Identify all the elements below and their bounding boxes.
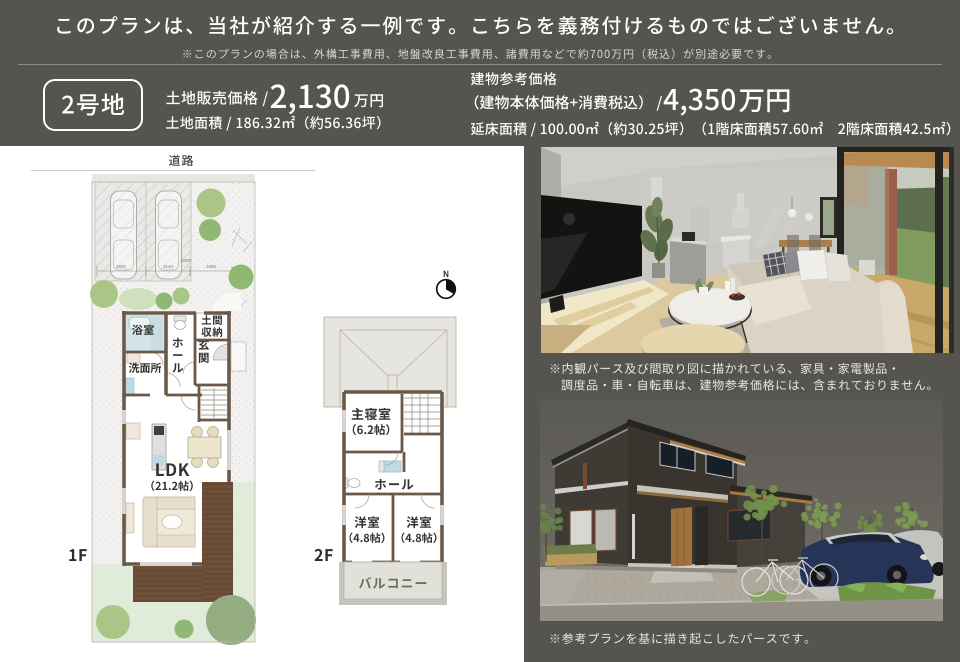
svg-text:5000: 5000 bbox=[181, 258, 192, 263]
svg-text:1500: 1500 bbox=[206, 264, 217, 269]
svg-text:2500: 2500 bbox=[116, 264, 127, 269]
svg-text:2140: 2140 bbox=[163, 264, 174, 269]
